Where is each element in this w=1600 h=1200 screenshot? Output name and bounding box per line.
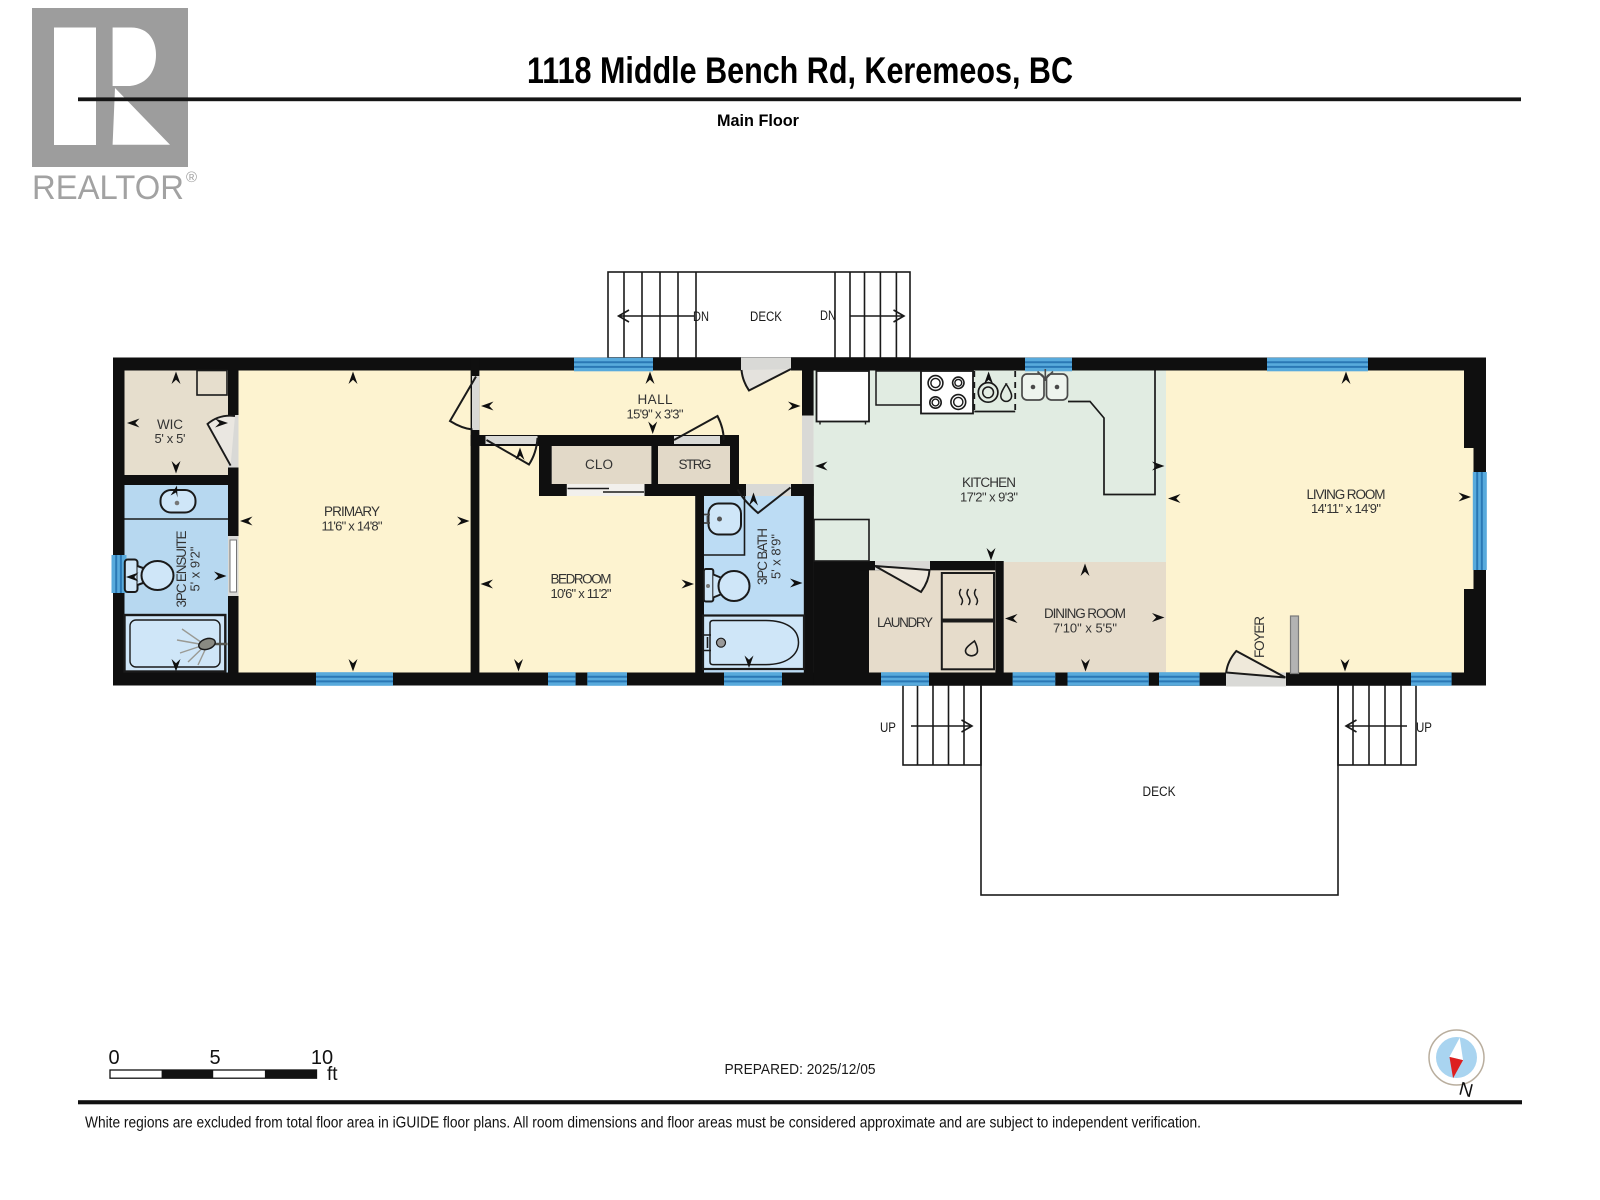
svg-text:5: 5 <box>209 1047 220 1069</box>
svg-text:LIVING ROOM: LIVING ROOM <box>1307 487 1386 502</box>
svg-text:DN: DN <box>820 308 836 323</box>
svg-text:KITCHEN: KITCHEN <box>962 475 1016 490</box>
svg-text:WIC: WIC <box>157 417 183 432</box>
svg-text:5' x 9'2": 5' x 9'2" <box>188 546 203 591</box>
svg-text:DN: DN <box>693 309 709 324</box>
svg-text:LAUNDRY: LAUNDRY <box>877 615 933 630</box>
svg-text:10'6" x 11'2": 10'6" x 11'2" <box>551 586 612 601</box>
svg-text:PREPARED: 2025/12/05: PREPARED: 2025/12/05 <box>725 1061 876 1078</box>
svg-text:17'2" x 9'3": 17'2" x 9'3" <box>960 490 1018 505</box>
svg-text:11'6" x 14'8": 11'6" x 14'8" <box>322 519 383 534</box>
svg-text:PRIMARY: PRIMARY <box>324 504 380 519</box>
svg-text:7'10" x 5'5": 7'10" x 5'5" <box>1053 621 1117 636</box>
svg-text:14'11" x 14'9": 14'11" x 14'9" <box>1311 501 1381 516</box>
svg-text:®: ® <box>186 169 197 186</box>
svg-text:DINING ROOM: DINING ROOM <box>1044 606 1126 621</box>
svg-text:HALL: HALL <box>638 392 673 407</box>
svg-text:UP: UP <box>880 720 896 735</box>
svg-text:1118 Middle Bench Rd, Keremeos: 1118 Middle Bench Rd, Keremeos, BC <box>527 50 1073 91</box>
svg-text:15'9" x 3'3": 15'9" x 3'3" <box>627 407 684 422</box>
svg-text:White regions are excluded fro: White regions are excluded from total fl… <box>85 1115 1201 1132</box>
svg-text:0: 0 <box>108 1047 119 1069</box>
svg-text:BEDROOM: BEDROOM <box>551 572 612 587</box>
svg-text:UP: UP <box>1416 720 1432 735</box>
svg-text:Main Floor: Main Floor <box>717 111 799 130</box>
svg-text:5' x 5': 5' x 5' <box>155 431 186 446</box>
svg-text:FOYER: FOYER <box>1252 616 1267 658</box>
svg-text:DECK: DECK <box>1143 784 1176 799</box>
svg-text:DECK: DECK <box>750 309 782 324</box>
svg-text:5' x 8'9": 5' x 8'9" <box>769 534 784 579</box>
svg-text:STRG: STRG <box>679 457 712 472</box>
svg-text:REALTOR: REALTOR <box>32 169 184 207</box>
svg-text:ft: ft <box>327 1064 338 1085</box>
svg-text:CLO: CLO <box>585 457 613 472</box>
